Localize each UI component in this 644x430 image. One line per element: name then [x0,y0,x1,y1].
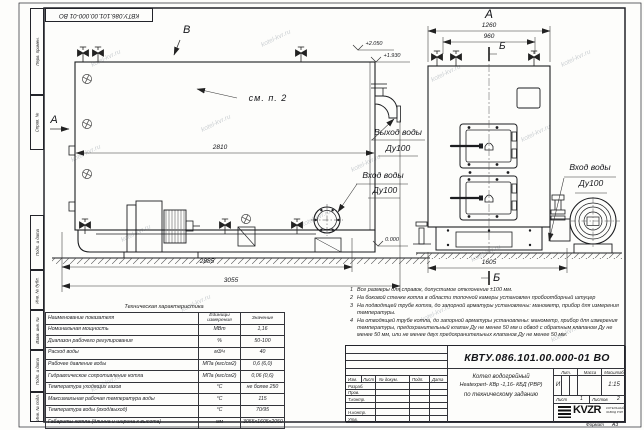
tb-scale-header: Масштаб [604,371,624,375]
valve-icon [432,51,443,66]
format-label: Формат [586,423,604,428]
valve-icon [529,51,540,66]
tb-sheets-value: 2 [617,397,620,402]
view-arrow-a-label: А [50,115,57,126]
kvzr-logo-icon [558,406,571,418]
front-inlet-dn-label: Ду100 [579,179,604,188]
valve-icon [292,219,303,234]
see-note-label: см. п. 2 [249,94,288,103]
tb-row-utv: Утв. [348,418,358,422]
dim-1605: 1605 [482,260,496,267]
tb-sheet-value: 1 [580,397,583,402]
corner-stamp-number: КВТУ.086.101.00.000-01 ВО [59,12,139,19]
instrument-port-icon [81,168,93,180]
tb-row-nkontr: Н.контр. [348,411,366,415]
boiler-door-upper [451,124,517,168]
spec-table-title: Техническая характеристика [124,304,203,310]
corner-stamp: КВТУ.086.101.00.000-01 ВО [45,8,153,22]
outlet-dn-label: Ду100 [386,144,411,153]
note-item: 1Все размеры для справок, допустимое отк… [346,287,622,294]
notes-list: 1Все размеры для справок, допустимое отк… [346,287,622,340]
format-value: А3 [612,423,618,428]
drawing-sheet: kotel-kvr.ru kotel-kvr.ru kotel-kvr.ru k… [0,0,644,430]
inlet-dn-label: Ду100 [373,186,398,195]
tb-col-list: Лист [363,378,374,382]
kvzr-logo-subtext: КОТЕЛЬНЫЙ ЗАВОД РЭП [606,407,625,415]
valve-icon [220,219,231,234]
dim-2885: 2885 [200,259,214,266]
note-item: 4На отводящей трубе котла, до запорной а… [346,318,622,338]
table-row: Гидравлическое сопротивление котлаМПа (к… [46,371,285,383]
front-view-label: А [485,8,493,20]
tb-row-razrab: Разраб. [348,385,364,389]
table-row: Диапазон рабочего регулирования%50-100 [46,336,285,348]
frame-stamp-podp-data-2: Подп. и дата [30,350,44,392]
frame-stamp-podp-data-1: Подп. и дата [30,215,44,270]
section-b-bottom-label: Б [493,273,500,284]
kvzr-logo-text: KVZR [573,405,601,416]
valve-icon [296,47,307,62]
instrument-port-icon [81,118,93,130]
frame-stamp-sprav: Справ. № [30,95,44,150]
table-row: Расход водым3/ч40 [46,347,285,359]
spec-header-row: Наименование показателя Единицы измерени… [46,313,285,325]
frame-stamp-perv-primen: Перв. примен. [30,8,44,95]
tb-scale-value: 1:15 [608,382,620,388]
elevation-2050-label: +2.050 [366,42,383,48]
tb-col-podp: Подп. [412,378,423,382]
table-row: Температура воды (вход/выход)°С70/95 [46,405,285,417]
view-arrow-v-label: В [183,25,190,36]
tb-name-line2: Heatexpert- КВр -1,16- КБД (РВР) [460,383,543,388]
outlet-water-label: Выход воды [374,128,422,137]
tb-doc-number: КВТУ.086.101.00.000-01 ВО [448,346,626,369]
tb-col-doc: № докум. [379,378,398,382]
front-inlet-water-label: Вход воды [569,163,610,172]
dim-960: 960 [484,34,495,41]
table-row: Температура уходящих газов°Сне более 250 [46,382,285,394]
tb-col-data: Дата [432,378,443,382]
table-row: Максимальная рабочая температура воды°С1… [46,394,285,406]
valve-icon [93,47,104,62]
spec-col-name: Наименование показателя [46,313,199,325]
dim-1260: 1260 [482,23,496,30]
frame-stamp-inv-podl: Инв. № подл. [30,392,44,422]
side-view [50,40,430,292]
inlet-water-label: Вход воды [362,171,403,180]
tb-lit-header: Лит. [561,371,571,375]
section-b-top-label: Б [499,42,506,52]
table-row: Номинальная мощностьМВт1,16 [46,324,285,336]
boiler-door-lower [451,176,517,220]
tb-sheet-label: Лист [556,398,567,402]
table-row: Рабочее давление водыМПа (кгс/см2)0,6 (6… [46,359,285,371]
tb-mass-header: Масса [584,371,596,375]
tb-sheets-label: Листов [592,398,608,402]
spec-table: Наименование показателя Единицы измерени… [45,312,285,429]
elevation-0-label: 0.000 [385,238,399,244]
note-item: 2На боковой стенке котла в области топоч… [346,295,622,302]
tb-lit-value: И [556,382,560,388]
dim-3055: 3055 [224,278,238,285]
valve-icon [451,51,462,66]
spec-col-value: Значение [241,313,285,325]
tb-name-line1: Котел водогрейный [472,374,529,380]
tb-name-line3: по техническому заданию [464,392,538,398]
table-row: Габариты котла (длинна и ширина к высота… [46,417,285,429]
front-view [413,26,622,285]
dim-2810: 2810 [213,145,227,152]
tb-row-tkontr: Т.контр. [348,398,365,402]
title-block: Изм. Лист № докум. Подп. Дата Разраб. Пр… [345,345,625,422]
tb-row-prov: Пров. [348,391,359,395]
valve-icon [80,219,91,234]
elevation-1930-label: +1.930 [384,54,401,60]
frame-stamp-inv-dubl: Инв. № дубл. [30,270,44,310]
note-item: 3На подводящей трубе котла, до запорной … [346,303,622,316]
valve-icon [78,47,89,62]
frame-stamp-vzam-inv: Взам. инв. № [30,310,44,350]
spec-col-units: Единицы измерения [199,313,241,325]
instrument-port-icon [81,73,93,85]
tb-col-izm: Изм. [348,378,357,382]
instrument-port-icon [240,213,252,225]
